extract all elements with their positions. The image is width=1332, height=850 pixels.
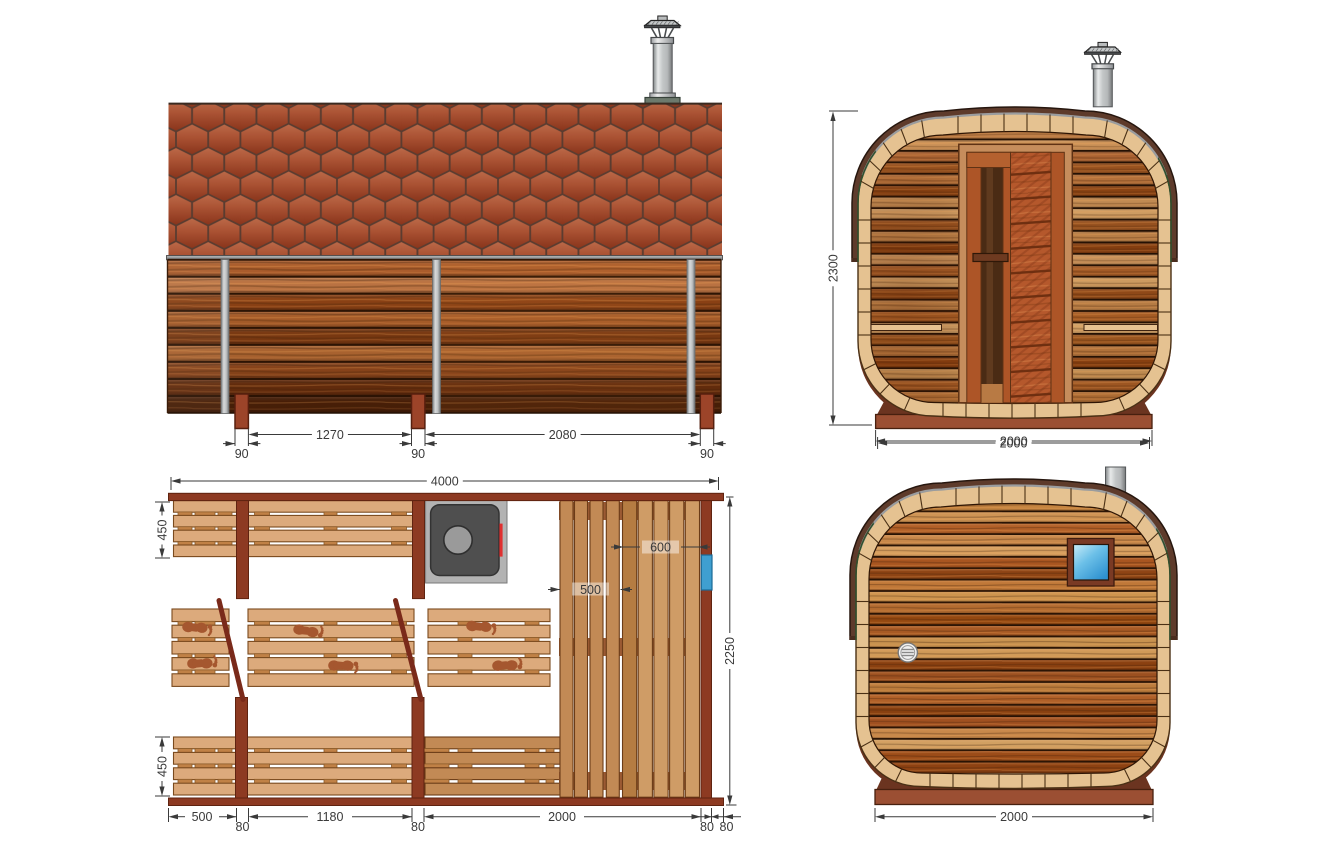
svg-text:500: 500 [580, 583, 601, 597]
svg-text:2300: 2300 [826, 254, 840, 282]
svg-text:2080: 2080 [549, 428, 577, 442]
svg-text:90: 90 [700, 447, 714, 461]
svg-text:1270: 1270 [316, 428, 344, 442]
svg-text:600: 600 [650, 541, 671, 555]
svg-text:2000: 2000 [1000, 810, 1028, 824]
svg-text:90: 90 [235, 447, 249, 461]
svg-text:450: 450 [155, 756, 169, 777]
svg-text:80: 80 [236, 820, 250, 834]
svg-text:2250: 2250 [723, 637, 737, 665]
svg-text:90: 90 [411, 447, 425, 461]
svg-text:2000: 2000 [548, 810, 576, 824]
svg-text:80: 80 [700, 820, 714, 834]
svg-text:80: 80 [411, 820, 425, 834]
svg-text:500: 500 [192, 810, 213, 824]
svg-text:4000: 4000 [431, 474, 459, 488]
svg-text:80: 80 [720, 820, 734, 834]
svg-text:1180: 1180 [317, 810, 344, 824]
svg-text:2000: 2000 [1000, 436, 1028, 450]
svg-text:450: 450 [155, 520, 169, 541]
